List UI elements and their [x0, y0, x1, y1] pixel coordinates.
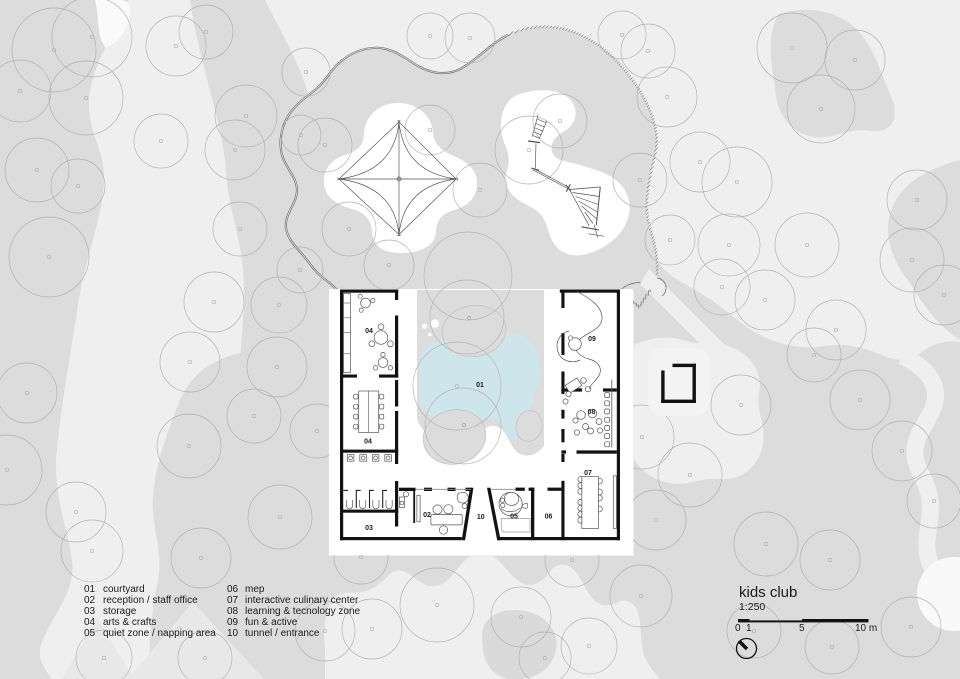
svg-text:mep: mep [245, 584, 265, 595]
svg-text:reception / staff office: reception / staff office [103, 595, 198, 606]
svg-text:02: 02 [84, 595, 96, 606]
svg-text:08: 08 [588, 409, 596, 416]
svg-text:05: 05 [84, 628, 96, 639]
svg-text:07: 07 [584, 470, 592, 477]
svg-text:01: 01 [84, 584, 96, 595]
svg-text:02: 02 [423, 512, 431, 519]
svg-text:kids club: kids club [739, 584, 797, 601]
svg-text:fun & active: fun & active [245, 617, 298, 628]
svg-text:10 m: 10 m [855, 623, 877, 634]
svg-text:07: 07 [227, 595, 239, 606]
svg-text:10: 10 [227, 628, 239, 639]
svg-text:08: 08 [227, 606, 239, 617]
svg-text:5: 5 [799, 623, 805, 634]
svg-text:0: 0 [735, 623, 741, 634]
svg-text:05: 05 [510, 514, 518, 521]
svg-text:storage: storage [103, 606, 137, 617]
svg-text:04: 04 [365, 328, 373, 335]
svg-text:courtyard: courtyard [103, 584, 145, 595]
svg-text:03: 03 [365, 525, 373, 532]
svg-text:quiet zone / napping area: quiet zone / napping area [103, 628, 216, 639]
svg-text:tunnel / entrance: tunnel / entrance [245, 628, 320, 639]
svg-text:04: 04 [84, 617, 96, 628]
svg-text:arts & crafts: arts & crafts [103, 617, 156, 628]
svg-text:interactive culinary center: interactive culinary center [245, 595, 359, 606]
svg-text:10: 10 [477, 514, 485, 521]
svg-text:03: 03 [84, 606, 96, 617]
svg-text:06: 06 [227, 584, 239, 595]
svg-text:01: 01 [476, 382, 484, 389]
svg-text:06: 06 [545, 514, 553, 521]
svg-text:1: 1 [746, 623, 752, 634]
svg-text:1:250: 1:250 [739, 601, 765, 613]
svg-text:04: 04 [364, 439, 372, 446]
svg-text:learning & tecnology zone: learning & tecnology zone [245, 606, 361, 617]
svg-text:09: 09 [227, 617, 239, 628]
svg-text:09: 09 [588, 336, 596, 343]
